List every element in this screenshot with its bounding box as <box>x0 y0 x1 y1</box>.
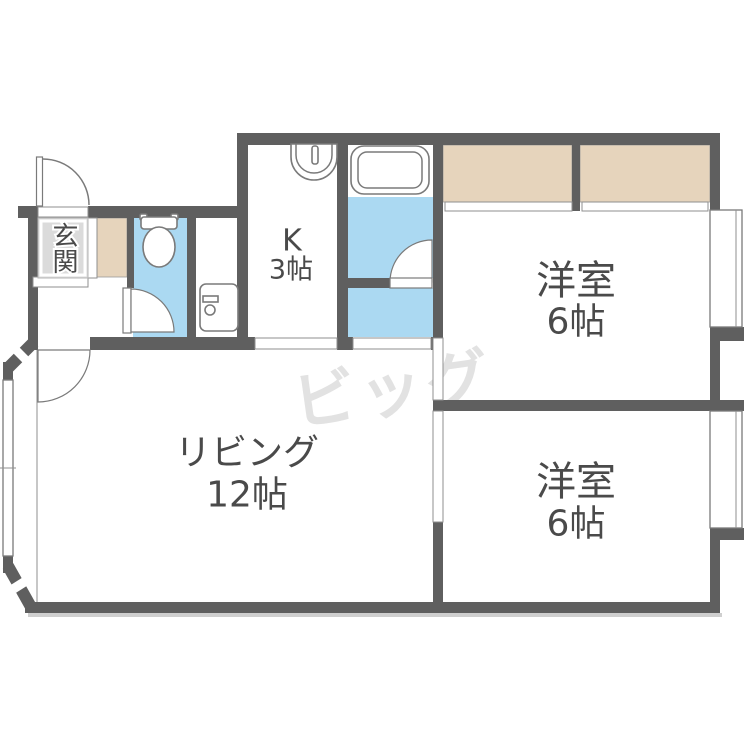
wall-kitchen-right <box>337 133 348 350</box>
wall-closet-divider <box>572 143 580 211</box>
bedroom-bottom-name-label: 洋室 <box>536 459 616 505</box>
shoe-cabinet <box>97 218 127 277</box>
bedroom-bottom-size-label: 6帖 <box>547 504 606 545</box>
kitchen-living-opening <box>255 338 337 349</box>
closet-left <box>443 145 572 202</box>
genkan-step-edge <box>88 218 97 278</box>
wall-bath-utility <box>348 278 390 288</box>
kitchen-name-label: K <box>282 224 303 259</box>
washbasin-faucet <box>203 296 218 302</box>
bathtub-icon <box>351 146 429 194</box>
wall-toilet-left <box>127 218 134 288</box>
living-size-label: 12帖 <box>206 475 288 516</box>
wall-middle-lower <box>433 522 443 613</box>
bedroom-top-name-label: 洋室 <box>536 258 616 304</box>
living-name-label: リビング <box>175 433 319 474</box>
wall-bedroom-left-upper <box>433 133 443 338</box>
living-bedroomtop-sliding-door <box>433 338 443 400</box>
wall-shadow <box>28 613 722 617</box>
entrance-threshold <box>38 207 88 217</box>
utility-living-opening <box>353 338 431 349</box>
chamfer-bottom-window <box>17 581 22 589</box>
floorplan-page: ビッグ <box>0 0 750 750</box>
washbasin-drain <box>205 305 215 315</box>
watermark-logo: ビッグ <box>288 340 497 440</box>
hallway <box>38 287 127 337</box>
wall-bottom <box>25 602 720 613</box>
wall-bedroom-divider <box>433 400 744 411</box>
kitchen-sink-icon <box>291 144 337 180</box>
kitchen-faucet <box>312 146 318 164</box>
entrance-door-arc <box>43 159 89 205</box>
bathroom-door-leaf <box>390 278 432 288</box>
wall-right-stub2 <box>710 528 744 540</box>
kitchen-size-label: 3帖 <box>269 255 313 286</box>
genkan-label: 玄関 <box>48 222 78 274</box>
washbasin-icon <box>200 284 238 331</box>
window-right-top <box>710 210 742 327</box>
wall-toilet-right <box>187 218 196 338</box>
closet-left-sliding-door <box>445 202 572 211</box>
wall-living-top-b <box>90 337 255 350</box>
toilet-icon <box>140 214 178 267</box>
floorplan-svg: ビッグ <box>0 0 750 750</box>
living-bedroombottom-sliding-door <box>433 411 443 522</box>
entrance-door-leaf <box>37 157 43 206</box>
closet-right-sliding-door <box>582 202 708 211</box>
toilet-door-leaf <box>123 288 131 333</box>
wall-corridor-left <box>28 206 38 340</box>
bedroom-top-size-label: 6帖 <box>547 302 606 343</box>
wall-right-mid <box>710 341 720 400</box>
closet-right <box>580 145 710 202</box>
wall-right-stub1 <box>710 327 744 341</box>
window-right-bottom <box>710 411 742 528</box>
wall-right-top <box>710 133 720 210</box>
living-door-swing <box>38 350 90 402</box>
toilet-bowl <box>143 227 175 267</box>
chamfer-top-window <box>18 352 24 358</box>
wall-living-top-c <box>337 337 353 350</box>
utility-floor <box>348 288 433 337</box>
